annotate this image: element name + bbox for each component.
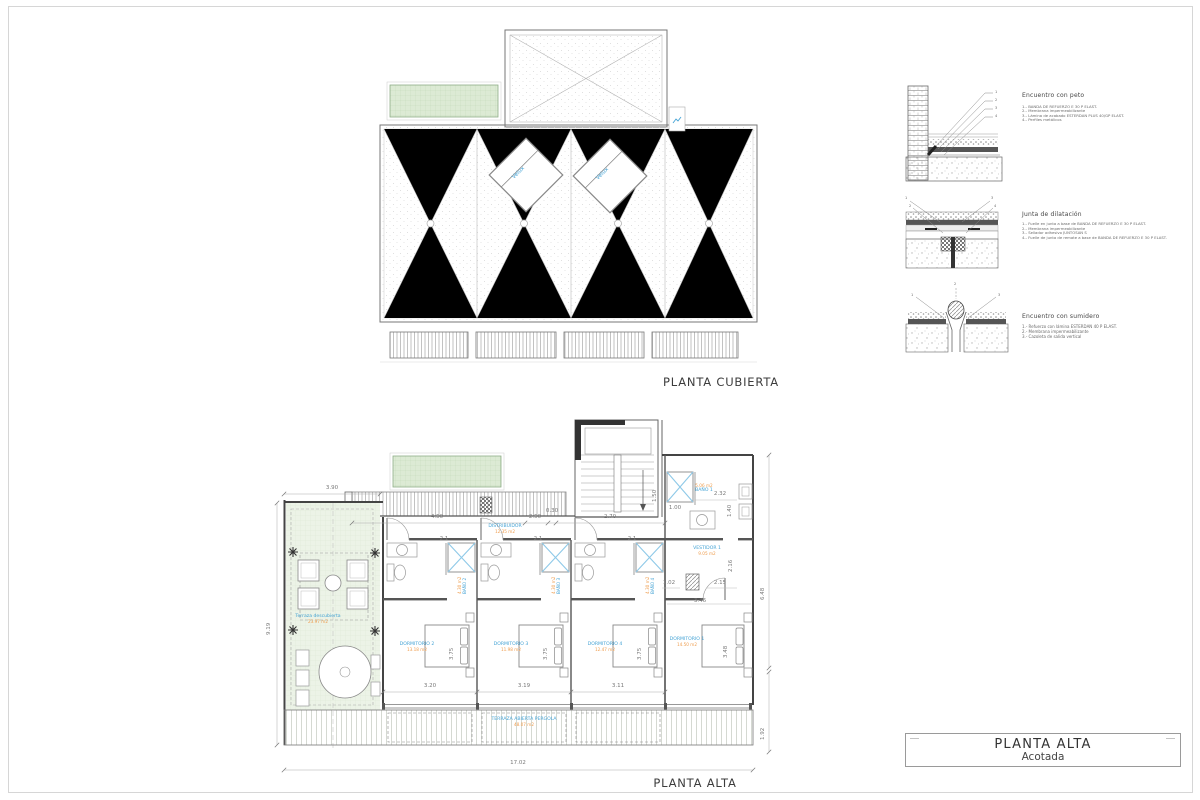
title-block-corner-mark [910, 738, 919, 739]
detail-notes-junta: 1.- Fuelle en junta a base de BANDA DE R… [1022, 222, 1167, 240]
detail-title-peto: Encuentro con peto [1022, 92, 1084, 99]
floor-planter [393, 456, 501, 487]
roof-plan [380, 30, 757, 362]
title-block-line2: Acotada [1022, 752, 1065, 763]
dim-2-1: 2.1 [624, 536, 640, 542]
detail-junta [906, 201, 998, 268]
dim-2-15: 2.15 [708, 580, 732, 586]
callout-3: 3 [991, 196, 993, 200]
dim-3-20: 3.20 [416, 683, 444, 689]
floor-plan-title: PLANTA ALTA [630, 776, 760, 790]
louvre-band [352, 492, 566, 516]
dim-2-70: 2.70 [596, 514, 624, 520]
room-label-vestidor1: VESTIDOR 1 9.05 m2 [678, 546, 736, 556]
dim-2-1: 2.1 [436, 536, 452, 542]
dim-3-46: 3.46 [686, 598, 714, 604]
detail-peto [906, 86, 1002, 181]
roof-plan-title: PLANTA CUBIERTA [636, 375, 806, 389]
dim-3-19: 3.19 [510, 683, 538, 689]
bedroom-module-2 [383, 518, 477, 708]
dim-3-11: 3.11 [604, 683, 632, 689]
room-label-distribuidor: DISTRIBUIDOR 12.35 m2 [477, 524, 533, 534]
detail-title-sumidero: Encuentro con sumidero [1022, 313, 1099, 320]
dim-3-75: 3.75 [449, 648, 455, 660]
title-block-corner-mark [1166, 738, 1175, 739]
dim-3-75: 3.75 [543, 648, 549, 660]
dim-2-32: 2.32 [708, 491, 732, 497]
dim-6-48: 6.48 [760, 588, 766, 600]
callout-2: 2 [954, 282, 956, 286]
dim-0-30: 0.30 [542, 508, 562, 514]
callout-1: 1 [995, 90, 997, 94]
dim-1-00: 1.00 [666, 505, 684, 511]
dim-1-50: 1.50 [652, 490, 658, 502]
room-label-terraza: Terraza descubierta 23.97 m2 [286, 614, 350, 624]
detail-title-junta: Junta de dilatación [1022, 211, 1082, 218]
drawing-canvas [0, 0, 1200, 800]
callout-2: 2 [995, 98, 997, 102]
staircase [575, 420, 662, 517]
dim-17-02: 17.02 [502, 760, 534, 766]
title-block-line1: PLANTA ALTA [994, 738, 1091, 752]
dim-3-48: 3.48 [723, 646, 729, 658]
title-block: PLANTA ALTA Acotada [905, 733, 1181, 767]
room-label-dormitorio2: DORMITORIO 2 13.18 m2 [390, 642, 444, 652]
plant-icon [288, 625, 298, 635]
dim-1-92: 1.92 [760, 728, 766, 740]
room-label-bano2: 4.30 m2 BAÑO 2 [457, 577, 467, 594]
callout-1: 1 [911, 293, 913, 297]
room-label-dormitorio3: DORMITORIO 3 11.98 m2 [484, 642, 538, 652]
dim-2-1: 2.1 [530, 536, 546, 542]
plant-icon [370, 626, 380, 636]
room-label-bano3: 4.30 m2 BAÑO 3 [551, 577, 561, 594]
detail-notes-peto: 1.- BANDA DE REFUERZO E 30 P ELAST. 2.- … [1022, 105, 1124, 123]
dim-1-40: 1.40 [727, 505, 733, 517]
plant-icon [288, 547, 298, 557]
dim-1-02: 1.02 [659, 580, 679, 586]
callout-3: 3 [998, 293, 1000, 297]
room-label-dormitorio1: DORMITORIO 1 14.50 m2 [660, 637, 714, 647]
dim-2-16: 2.16 [728, 560, 734, 572]
room-label-pergola: TERRAZA ABIERTA PERGOLA 48.07 m2 [476, 717, 572, 727]
bedroom-module-4 [571, 518, 665, 708]
callout-4: 4 [995, 114, 997, 118]
callout-4: 4 [994, 204, 996, 208]
detail-notes-sumidero: 1.- Refuerzo con lámina ESTERDAN 40 P EL… [1022, 324, 1117, 339]
roof-planter [390, 85, 498, 117]
dim-9-19: 9.19 [266, 623, 272, 635]
pergola-terrace [284, 710, 753, 745]
detail-sumidero [906, 288, 1008, 352]
callout-1: 1 [905, 196, 907, 200]
callout-2: 2 [909, 204, 911, 208]
roof-marker [669, 107, 685, 131]
roof-pergola-slats [390, 332, 738, 358]
dim-2-50: 2.50 [521, 514, 549, 520]
plant-icon [370, 548, 380, 558]
dim-3-90: 3.90 [318, 485, 346, 491]
bedroom-module-3 [477, 518, 571, 708]
drawing-sheet: PLANTA CUBIERTA PLANTA ALTA Velux Velux … [0, 0, 1200, 800]
callout-3: 3 [995, 106, 997, 110]
room-label-dormitorio4: DORMITORIO 4 12.47 m2 [578, 642, 632, 652]
dim-4-50: 4.50 [423, 514, 451, 520]
room-label-bano4: 4.30 m2 BAÑO 4 [645, 577, 655, 594]
dim-3-75: 3.75 [637, 648, 643, 660]
